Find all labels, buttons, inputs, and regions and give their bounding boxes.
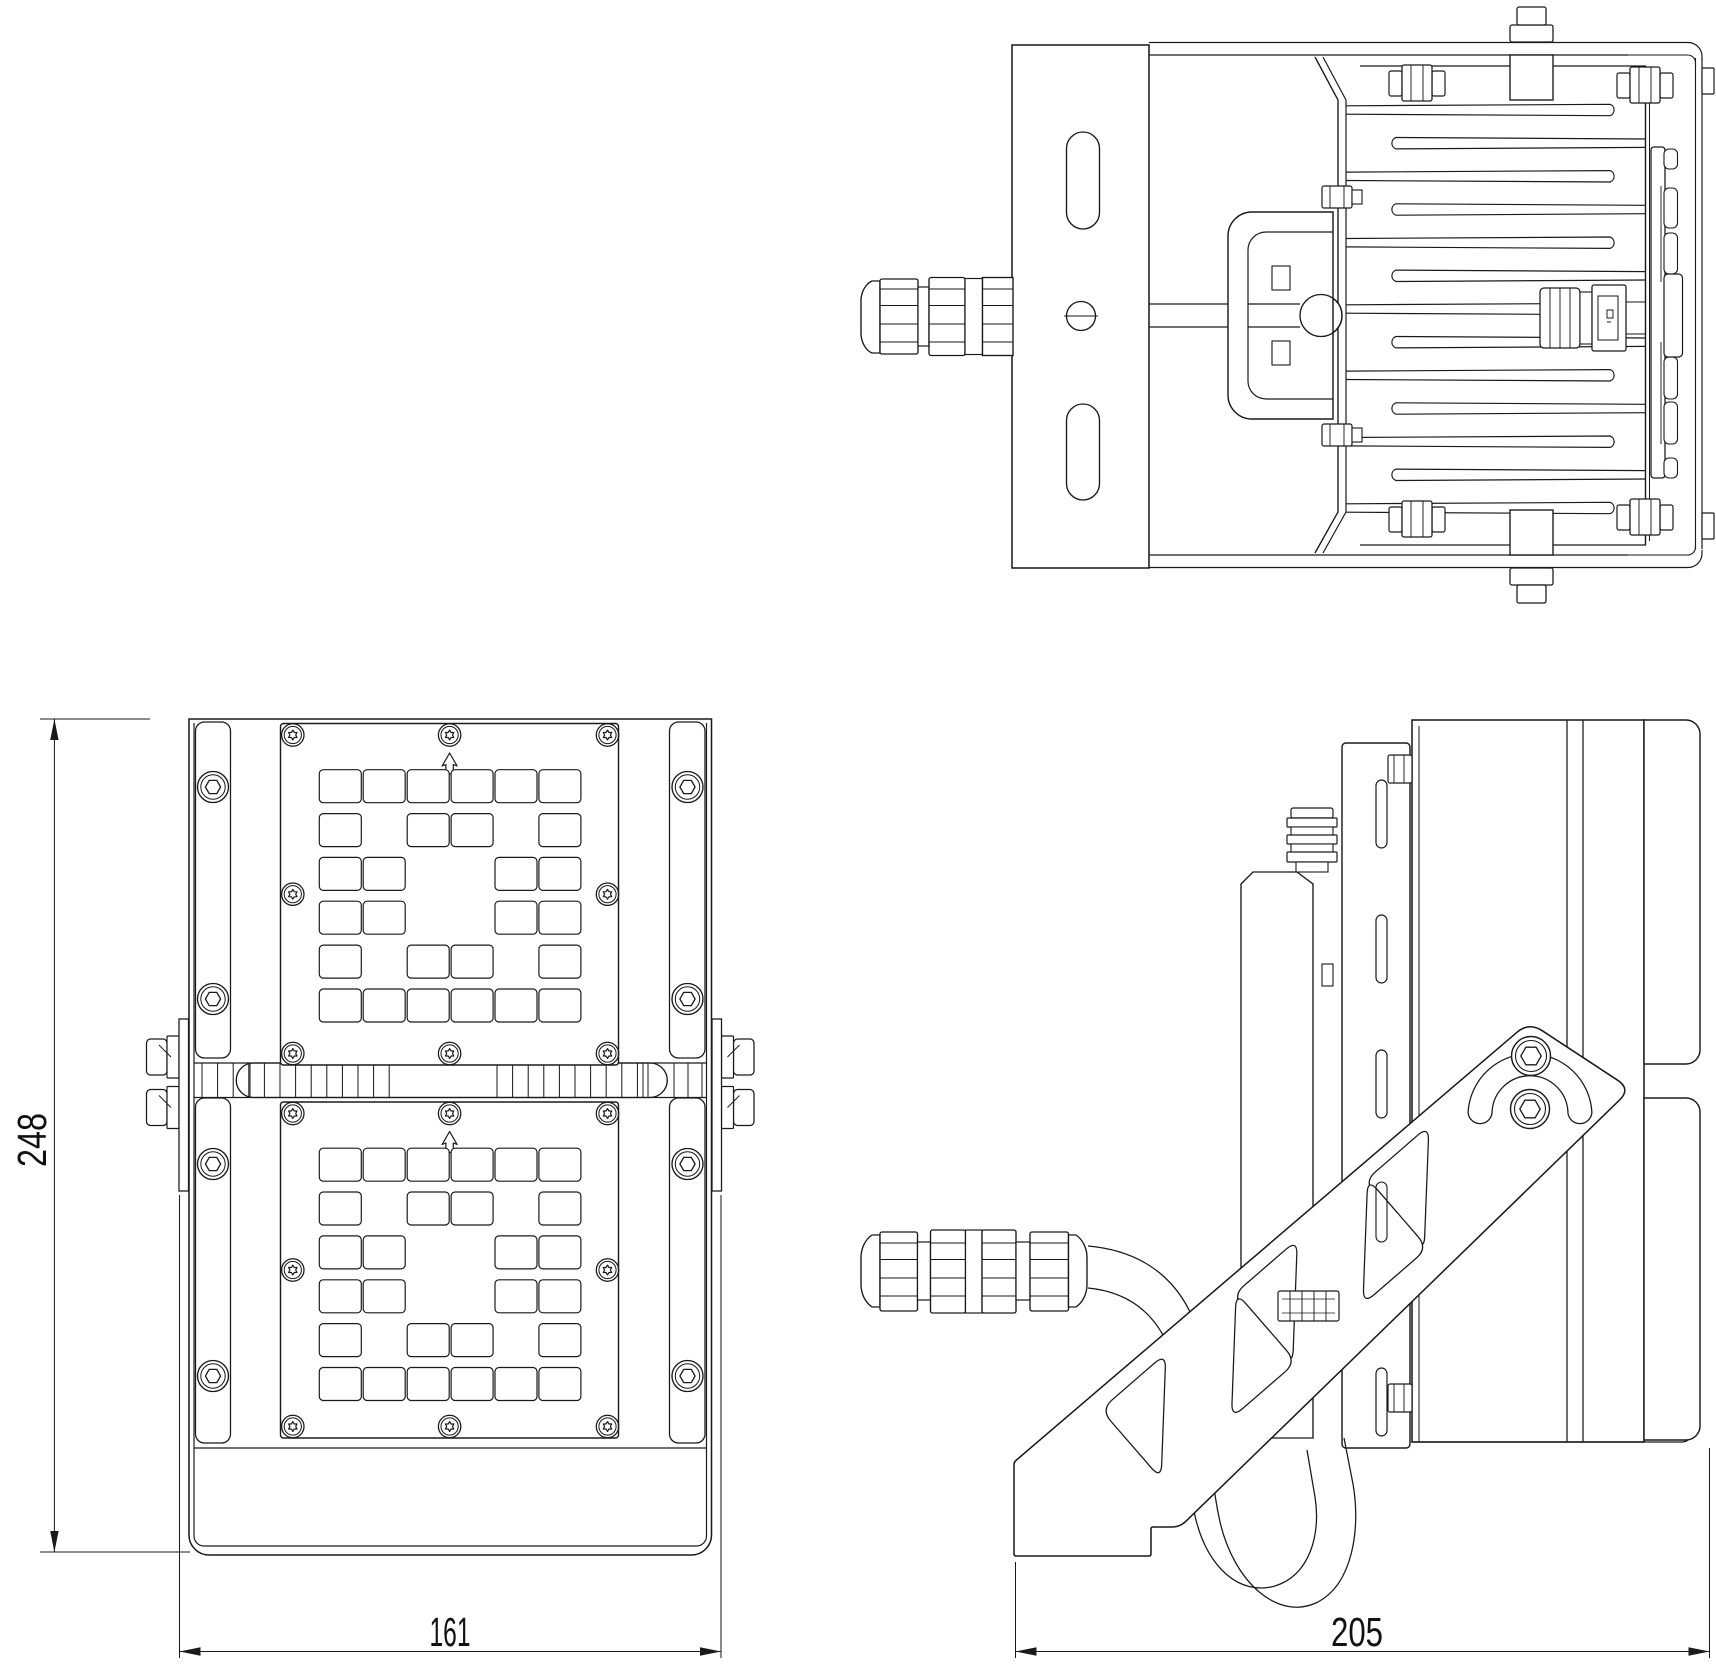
svg-text:248: 248: [9, 1113, 55, 1167]
svg-text:161: 161: [430, 1609, 471, 1655]
svg-text:205: 205: [1331, 1609, 1383, 1655]
